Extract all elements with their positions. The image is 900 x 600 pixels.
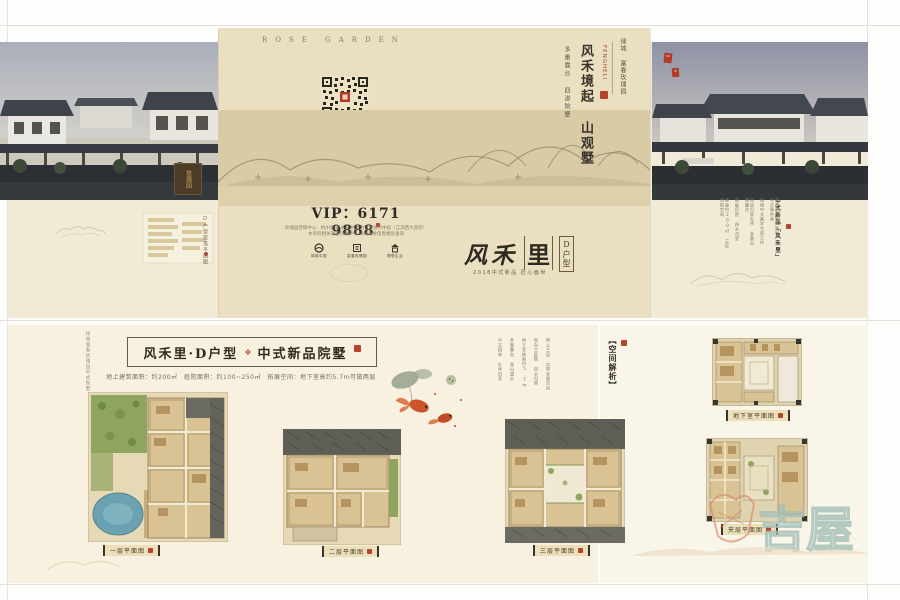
release-caption: 2018中式新品 匠心面世 bbox=[455, 269, 565, 276]
address-block: 玫瑰园营销中心：杭州富阳·东洲·杭富沿江发展带中段（江滨西大道旁） 本资料相关内… bbox=[270, 226, 442, 238]
plan-title-sub: 中式新品院墅 bbox=[257, 343, 347, 362]
cover-logo-pinyin: FENGHELI bbox=[601, 45, 607, 80]
plan-caption-level3: 三层平面图 bbox=[533, 545, 590, 556]
right-flap-seal bbox=[786, 224, 791, 229]
goldfish-painting bbox=[385, 366, 473, 436]
floor-plan-level2 bbox=[283, 429, 401, 545]
plan-caption-level2: 二层平面图 bbox=[322, 546, 379, 557]
plan-caption-basement: 地下室平面图 bbox=[726, 410, 790, 421]
mountain-sketch bbox=[688, 264, 788, 288]
calligraphy-li: 里 bbox=[524, 236, 553, 270]
caption-seal bbox=[148, 548, 153, 553]
floor-plan-level1 bbox=[88, 392, 228, 542]
analysis-seal bbox=[621, 340, 627, 346]
cover-headline: 风禾境起 山观墅 bbox=[576, 44, 595, 166]
cover-subline: 多重露台 四进院墅 bbox=[562, 46, 571, 119]
faint-emblem bbox=[330, 264, 368, 282]
brochure-sheet: 玫瑰园 D户型院落平面图 ROSE GARDEN bbox=[0, 0, 900, 600]
flower-separator-icon: ❖ bbox=[244, 348, 251, 357]
cloud-sketch bbox=[52, 220, 107, 242]
seal-logo-icon bbox=[352, 243, 362, 253]
dune-sketch-left bbox=[48, 553, 120, 573]
cover-seal-stamp bbox=[600, 91, 608, 99]
plan-title-main: 风禾里·D户型 bbox=[144, 343, 239, 362]
crop-line-top bbox=[0, 25, 900, 26]
map-caption: D户型院落平面图 bbox=[202, 216, 209, 265]
caption-seal bbox=[367, 549, 372, 554]
title-seal bbox=[354, 345, 361, 352]
crop-line-bottom bbox=[0, 584, 900, 585]
fold-line-right bbox=[650, 28, 651, 318]
type-tag: D户型 bbox=[559, 236, 574, 272]
analysis-text: 地上三层 实得多重空间 南向主庭院 四水归堂 地下室挑高约5.7m 多重露台 观… bbox=[498, 338, 551, 392]
plan-title-box: 风禾里·D户型 ❖ 中式新品院墅 bbox=[127, 337, 377, 367]
address-line-2: 本资料相关内容仅供参考 详情请致电售楼处垂询 bbox=[270, 232, 442, 238]
logo-greentown: 绿城中国 bbox=[302, 243, 336, 259]
brand-plaque: 玫瑰园 bbox=[174, 163, 202, 195]
dune-sketch-right bbox=[630, 540, 870, 560]
headline-divider bbox=[612, 42, 613, 94]
crop-line-middle bbox=[0, 320, 900, 321]
rose-garden-wordmark: ROSE GARDEN bbox=[262, 36, 406, 44]
area-stats: 地上建筑面积：约200㎡ 庭院面积：约100~250㎡ 拓展空间：地下室高约5.… bbox=[88, 372, 394, 381]
plaque-label: 玫瑰园 bbox=[184, 170, 193, 188]
caption-seal bbox=[778, 413, 783, 418]
right-architecture-photo bbox=[652, 42, 868, 200]
crescent-logo-icon bbox=[314, 243, 324, 253]
calligraphy-fenghe: 风禾 bbox=[464, 236, 518, 270]
analysis-title: 【空间解析】 bbox=[608, 336, 619, 390]
logo-rosegarden: 富春玫瑰园 bbox=[340, 243, 374, 259]
developer-logos: 绿城中国 富春玫瑰园 理想生活 bbox=[302, 243, 412, 259]
pavilion-logo-icon bbox=[390, 243, 400, 253]
brand-name-vertical: 绿城·富春玫瑰园 bbox=[618, 38, 627, 95]
floor-plan-basement bbox=[712, 338, 802, 406]
side-caption: 绿城富春玫瑰园中式院墅 bbox=[84, 331, 90, 392]
calligraphy-logo: 风禾 里 D户型 bbox=[464, 236, 574, 272]
logo-lifestyle: 理想生活 bbox=[378, 243, 412, 259]
right-flap-description: 富春山居图实景地 千年文脉传承 绿城中式美学大成之作 四进归家礼序 多重山景露台… bbox=[720, 198, 780, 250]
floor-plan-level3 bbox=[505, 419, 625, 543]
caption-seal bbox=[578, 548, 583, 553]
